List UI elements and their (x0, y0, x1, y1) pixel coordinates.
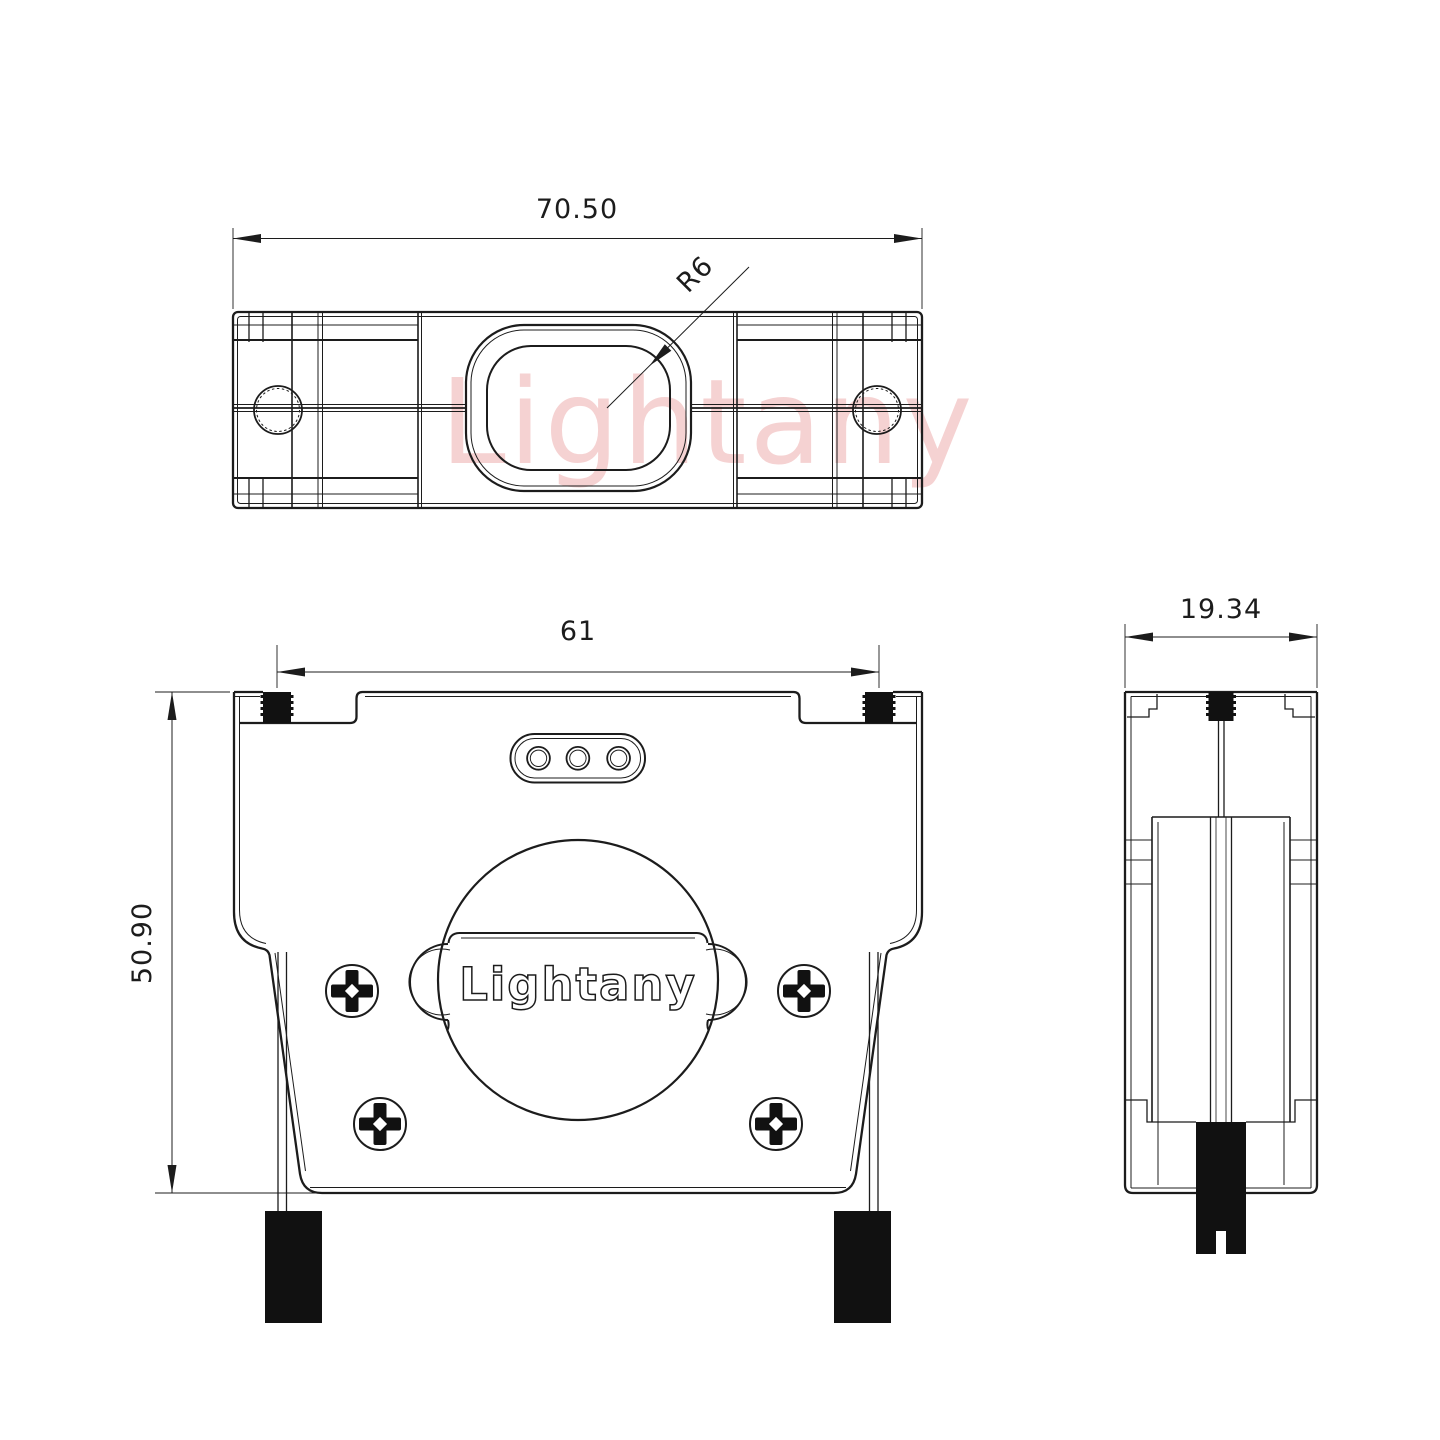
jackscrew-side (1206, 692, 1236, 721)
phillips-screw (354, 1098, 406, 1150)
watermark-text: Lightany (440, 353, 975, 491)
arrowhead-left (233, 234, 261, 243)
insert-channel-inner (1216, 817, 1226, 1122)
dimension-value: 19.34 (1180, 594, 1262, 625)
dimension-front-width: 61 (277, 616, 879, 688)
extension-line (277, 645, 879, 688)
extension-line (1125, 624, 1317, 688)
side-edge-ticks (1125, 840, 1317, 884)
engineering-drawing: Lightany 70.50 (0, 0, 1440, 1440)
insert-bottom-step (1125, 1100, 1317, 1122)
dimension-value: 61 (560, 616, 596, 647)
arrowhead-right (851, 668, 879, 677)
shell-lower-inner (240, 910, 917, 1188)
extension-line (155, 692, 320, 1193)
dimension-top-width: 70.50 (233, 194, 922, 309)
phillips-screw (778, 965, 830, 1017)
arrowhead-left (1125, 633, 1153, 642)
cable-boot-side (1196, 1122, 1246, 1255)
dimension-value: 70.50 (536, 194, 618, 225)
dimension-value: 50.90 (127, 902, 158, 984)
jackscrew-head-left (254, 386, 302, 434)
vent-slot (511, 734, 646, 783)
screw-stem (1219, 721, 1225, 817)
jackscrew-right (863, 692, 896, 723)
extension-line (233, 228, 922, 309)
brand-logo-text: Lightany (459, 958, 697, 1011)
insert-channel (1211, 817, 1232, 1122)
shell-sides-inner (240, 697, 917, 911)
logo-boss: Lightany (409, 840, 747, 1120)
cable-boot-right (834, 1211, 891, 1323)
cable-boot-left (265, 1211, 322, 1323)
dimension-side-width: 19.34 (1125, 594, 1317, 688)
shell-lower-outline (234, 912, 922, 1193)
drawing-sheet: Lightany 70.50 (0, 0, 1440, 1440)
front-view: 61 50.90 (127, 616, 922, 1323)
arrowhead-right (1289, 633, 1317, 642)
arrowhead-left (277, 668, 305, 677)
side-view: 19.34 (1125, 594, 1317, 1255)
arrowhead-right (894, 234, 922, 243)
radius-value: R6 (671, 250, 720, 299)
phillips-screw (326, 965, 378, 1017)
arrowhead-bottom (168, 1165, 177, 1193)
arrowhead-top (168, 692, 177, 720)
insert-body (1152, 817, 1290, 1122)
phillips-screw (750, 1098, 802, 1150)
side-outer-edges (1125, 692, 1317, 1185)
jackscrew-left (261, 692, 294, 723)
shell-sides (234, 692, 922, 912)
